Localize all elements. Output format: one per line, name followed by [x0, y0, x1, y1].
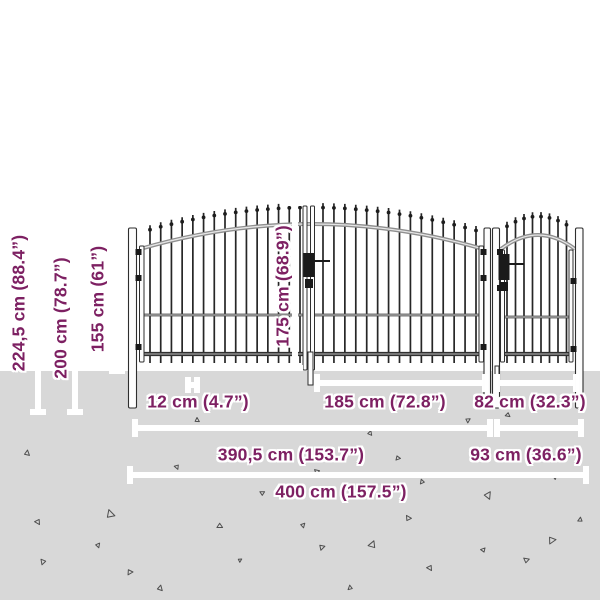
dim-label-leaf-width: 185 cm (72.8”): [324, 392, 445, 413]
diagram-canvas: 224,5 cm (88.4”) 200 cm (78.7”) 155 cm (…: [0, 0, 600, 600]
dim-label-post-height: 200 cm (78.7”): [51, 257, 72, 378]
dim-label-double-gate-width: 390,5 cm (153.7”): [218, 445, 364, 466]
drop-bolt-center: [308, 352, 313, 385]
dim-label-wicket-leaf-width: 82 cm (32.3”): [474, 392, 586, 413]
dim-label-total-width: 400 cm (157.5”): [275, 482, 406, 503]
post-left: [129, 228, 137, 408]
dim-label-post-width: 12 cm (4.7”): [147, 392, 249, 413]
dim-label-wicket-gate-width: 93 cm (36.6”): [470, 445, 582, 466]
dim-label-total-height: 224,5 cm (88.4”): [9, 235, 30, 371]
gate-top-rails: [140, 224, 575, 249]
gate-spear-tips: [148, 206, 568, 233]
dim-label-fence-height: 155 cm (61”): [88, 246, 109, 353]
dim-label-gate-leaf-height: 175 cm (68.9”): [273, 225, 294, 346]
